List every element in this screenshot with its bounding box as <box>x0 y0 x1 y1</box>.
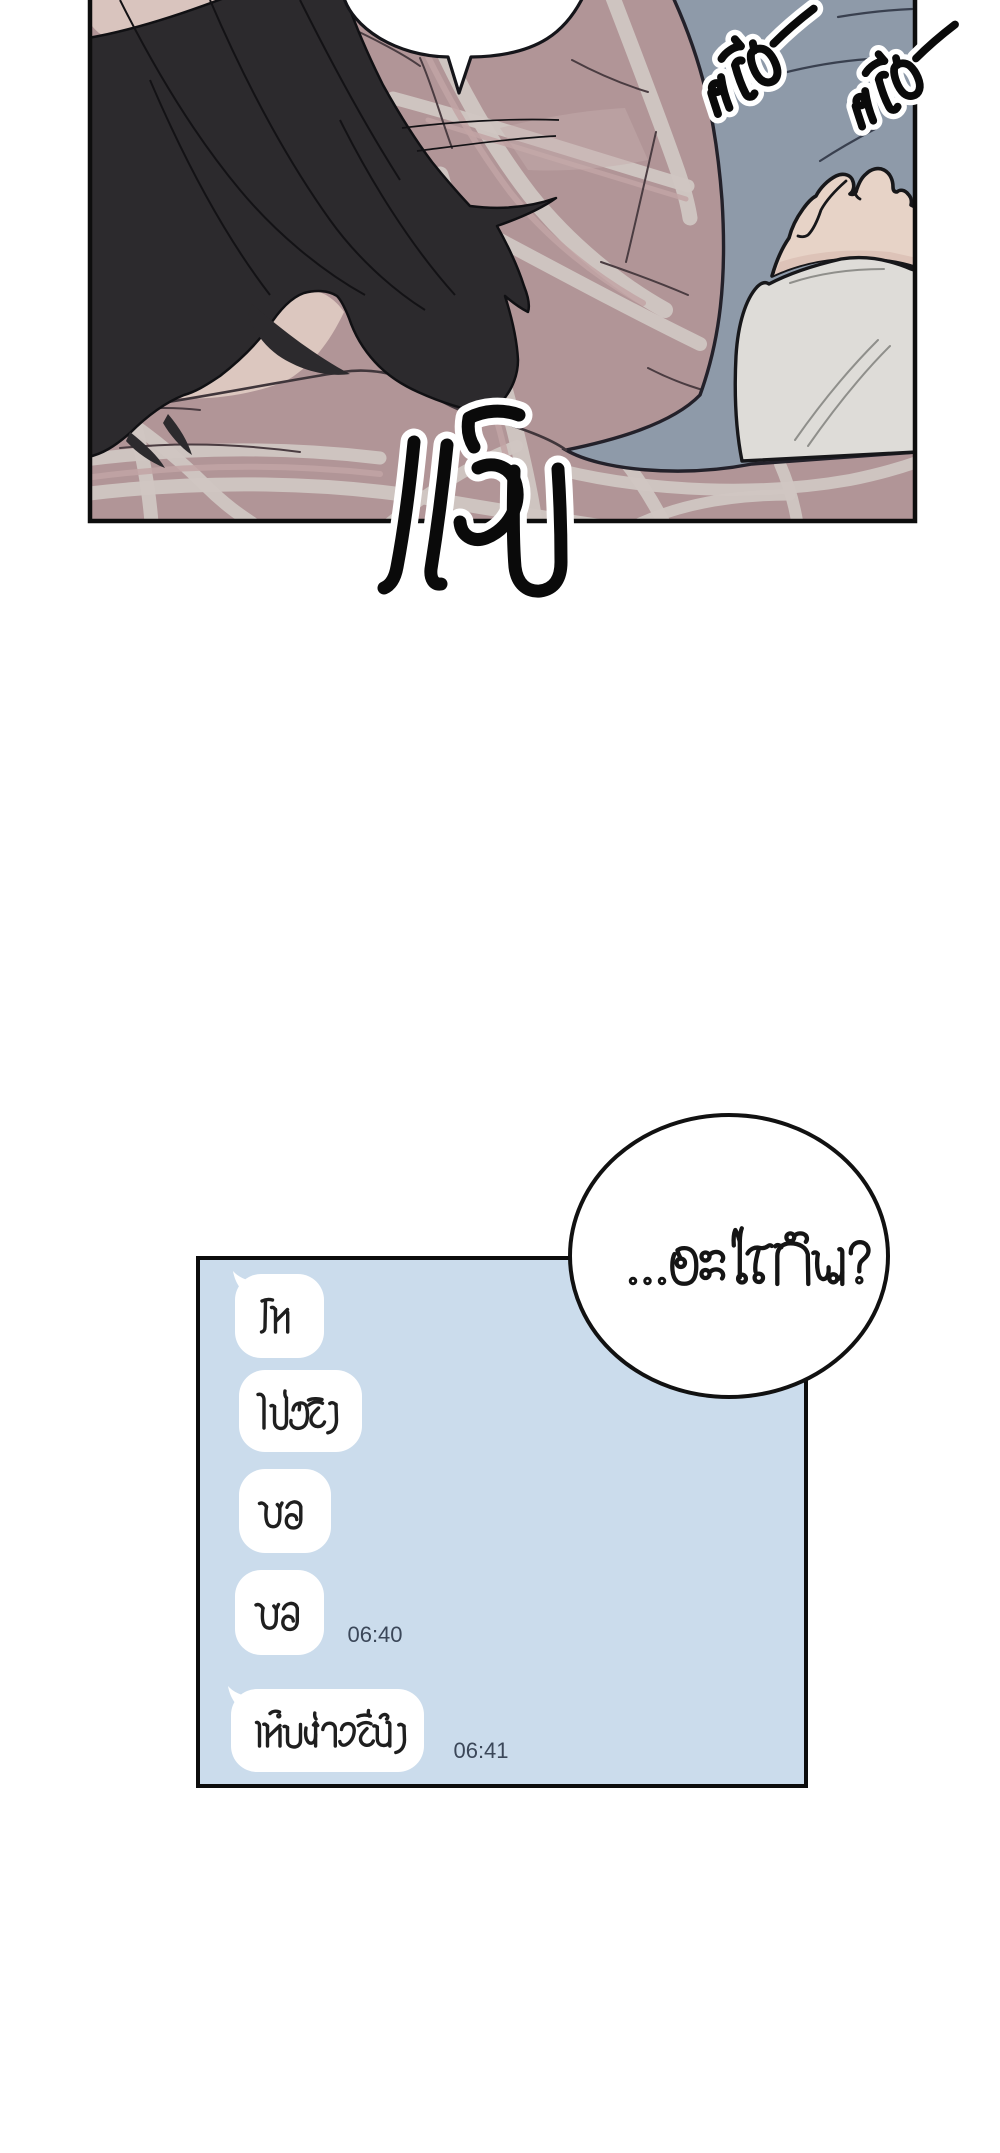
svg-text:06:40: 06:40 <box>347 1622 402 1647</box>
svg-text:06:41: 06:41 <box>453 1738 508 1763</box>
